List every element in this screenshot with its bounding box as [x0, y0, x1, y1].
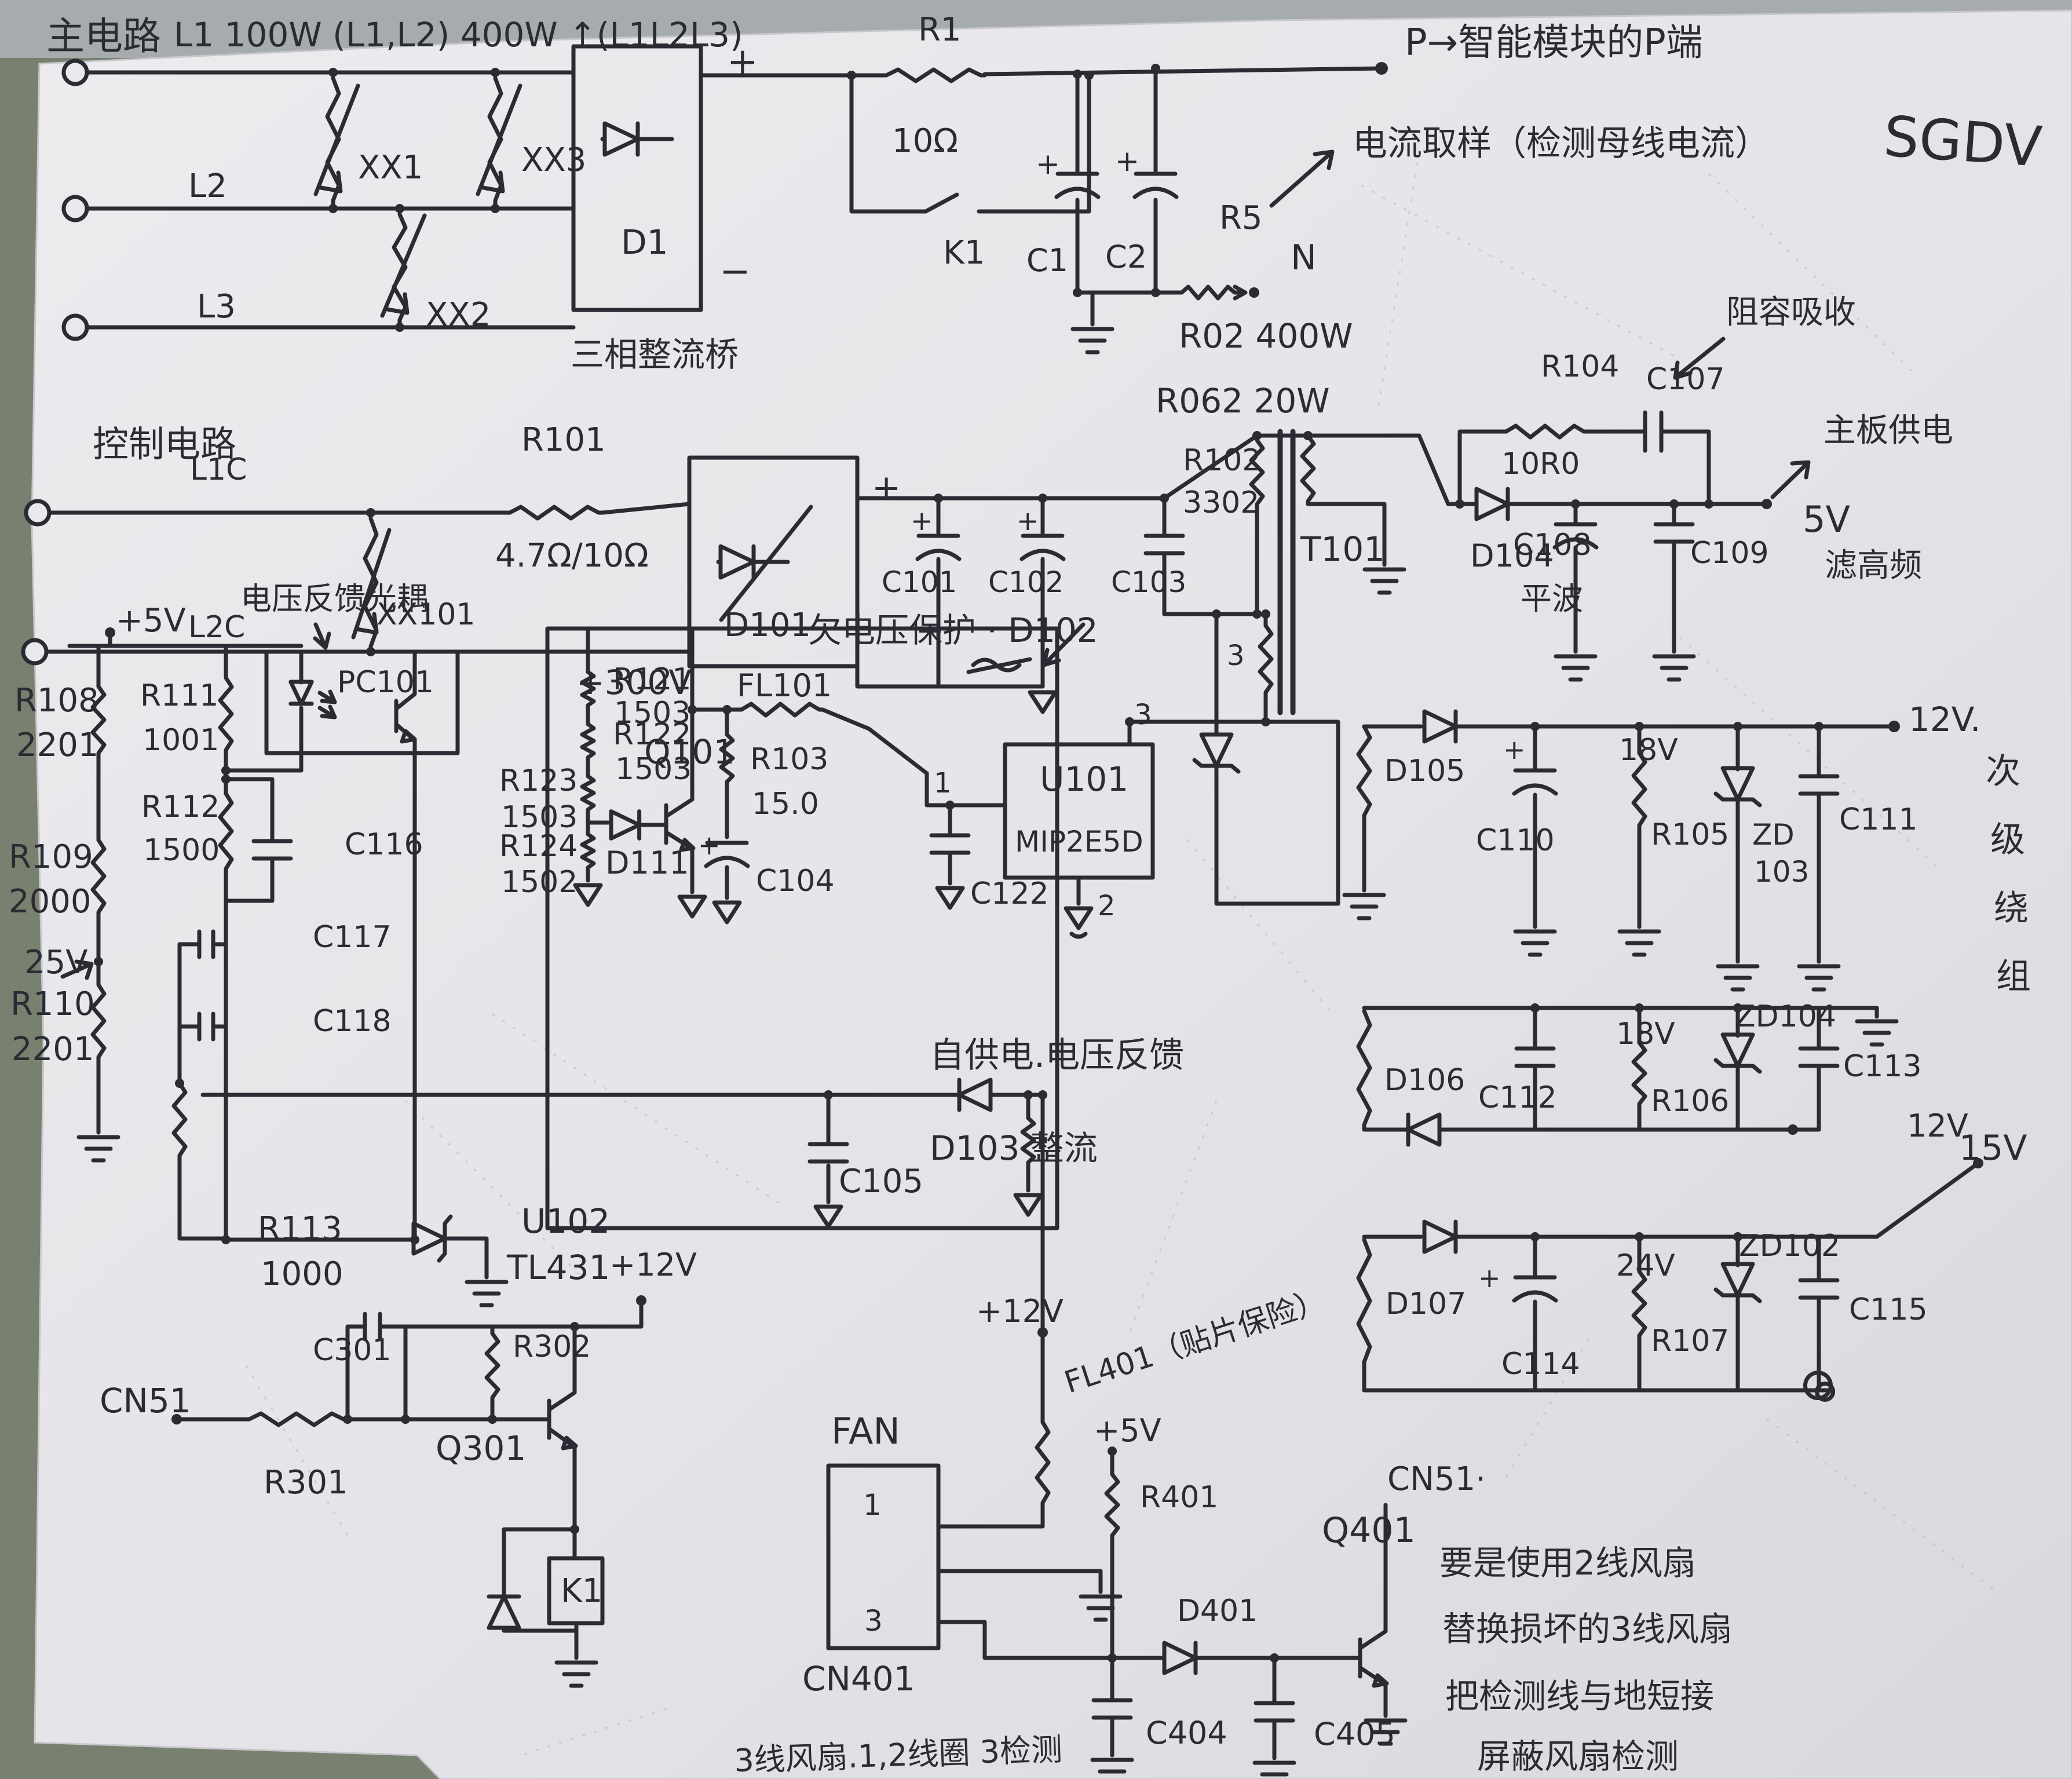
label-P-note: P→智能模块的P端 — [1405, 21, 1703, 64]
label-R1: R1 — [918, 11, 962, 49]
label-C405: C405 — [1314, 1716, 1395, 1752]
terminal-L3 — [64, 316, 87, 339]
schematic-canvas: 主电路L1 100W (L1,L2) 400W ↑(L1L2L3)L2L3XX1… — [0, 0, 2072, 1779]
label-R123: R123 — [499, 764, 578, 798]
label-c110p: + — [1503, 734, 1526, 765]
label-note2: 替换损坏的3线风扇 — [1442, 1609, 1733, 1649]
label-ZD102: ZD102 — [1739, 1229, 1840, 1263]
label-R105t: 18V — [1619, 733, 1678, 768]
label-sw3: 绕 — [1994, 888, 2029, 929]
label-N: N — [1291, 238, 1317, 278]
label-ZD103a: ZD — [1752, 818, 1795, 852]
label-snub-note: 阻容吸收 — [1726, 294, 1856, 331]
label-note3: 把检测线与地短接 — [1445, 1676, 1714, 1716]
label-L1C: L1C — [190, 452, 247, 487]
label-bridge-name: 三相整流桥 — [571, 335, 739, 374]
label-C103: C103 — [1111, 565, 1186, 599]
label-R110v: 2201 — [12, 1031, 94, 1068]
label-D103: D103 整流 — [930, 1128, 1098, 1168]
label-U101: U101 — [1040, 759, 1128, 799]
label-C109: C109 — [1690, 536, 1769, 571]
label-C102: C102 — [988, 565, 1064, 599]
label-R109v: 2000 — [9, 883, 92, 920]
label-K1c: K1 — [943, 234, 985, 272]
label-D1: D1 — [621, 222, 668, 262]
label-R107t: 24V — [1616, 1248, 1675, 1283]
label-R106t: 18V — [1616, 1017, 1675, 1051]
label-p5vfan: +5V — [1094, 1412, 1161, 1449]
label-FL101: FL101 — [737, 667, 832, 704]
label-R113: R113 — [258, 1210, 342, 1248]
label-C301: C301 — [313, 1333, 392, 1368]
label-R107: R107 — [1651, 1324, 1729, 1358]
terminal-L1C — [26, 501, 49, 524]
label-opto-note: 电压反馈光耦 — [240, 580, 428, 617]
label-R104: R104 — [1541, 349, 1619, 384]
label-Q401: Q401 — [1322, 1510, 1416, 1551]
label-SGDV: SGDV — [1881, 104, 2044, 180]
label-XX1: XX1 — [358, 149, 423, 187]
label-c102p: + — [1017, 505, 1039, 536]
label-CN401: CN401 — [802, 1659, 915, 1698]
label-C101: C101 — [882, 565, 957, 599]
label-R124v: 1502 — [501, 865, 578, 900]
label-C108: C108 — [1513, 528, 1592, 562]
label-p12fan: +12V — [976, 1293, 1064, 1329]
label-C118: C118 — [313, 1004, 392, 1039]
label-minus-d1: − — [719, 250, 751, 293]
label-T101: T101 — [1300, 529, 1385, 569]
label-c104p: + — [698, 830, 721, 861]
label-C115: C115 — [1849, 1292, 1928, 1327]
label-R101: R101 — [521, 421, 606, 459]
label-R1v: 10Ω — [892, 122, 958, 160]
label-pingbo: 平波 — [1521, 580, 1583, 617]
label-C104: C104 — [756, 864, 835, 898]
label-L3: L3 — [197, 288, 236, 326]
label-R101v: 4.7Ω/10Ω — [495, 537, 649, 575]
label-u101p3: 3 — [1134, 699, 1152, 731]
label-R401: R401 — [1140, 1480, 1218, 1515]
label-fanp1: 1 — [863, 1488, 882, 1522]
label-K1r: K1 — [561, 1572, 602, 1610]
label-C107: C107 — [1646, 362, 1725, 397]
label-sample-note: 电流取样（检测母线电流） — [1353, 123, 1770, 164]
label-R111v: 1001 — [142, 723, 219, 758]
label-R302: R302 — [513, 1329, 591, 1364]
label-R106: R106 — [1651, 1084, 1729, 1119]
label-ZD103b: 103 — [1754, 855, 1809, 889]
label-uv-note: 欠电压保护 · D102 — [808, 611, 1098, 650]
terminal-L1 — [64, 61, 87, 84]
label-self-note: 自供电.电压反馈 — [930, 1035, 1184, 1076]
label-CN51b: CN51· — [1387, 1460, 1486, 1498]
label-C111: C111 — [1839, 802, 1918, 837]
label-c114p: + — [1478, 1262, 1501, 1294]
label-C117: C117 — [313, 920, 392, 955]
label-R105: R105 — [1651, 817, 1729, 852]
label-p12relay: +12V — [609, 1247, 697, 1283]
label-FAN: FAN — [831, 1410, 900, 1452]
label-R112v: 1500 — [143, 833, 220, 868]
label-C105: C105 — [839, 1163, 923, 1200]
label-D106: D106 — [1384, 1063, 1465, 1098]
label-C1: C1 — [1026, 242, 1068, 279]
label-U101v: MIP2E5D — [1015, 825, 1143, 859]
label-sec-main: 主电路 — [46, 14, 161, 59]
label-out12: 12V. — [1909, 700, 1980, 739]
terminal-L2C — [23, 640, 46, 663]
label-c2p: + — [1115, 144, 1139, 178]
label-ZD104: ZD104 — [1735, 999, 1836, 1034]
label-5V: 5V — [1803, 498, 1850, 540]
label-R112: R112 — [141, 790, 220, 824]
label-fanp3: 3 — [864, 1604, 883, 1638]
label-L2: L2 — [188, 167, 227, 205]
label-D101: D101 — [724, 607, 811, 644]
label-R102: R102 — [1183, 443, 1261, 478]
label-PC101: PC101 — [337, 665, 434, 700]
label-R102v: 3302 — [1183, 485, 1259, 520]
label-note1: 要是使用2线风扇 — [1439, 1543, 1696, 1583]
label-sw2: 级 — [1990, 820, 2025, 860]
label-v25: 25V — [24, 944, 88, 981]
label-sw1: 次 — [1986, 751, 2020, 792]
label-L2C: L2C — [188, 610, 245, 645]
label-C2: C2 — [1105, 239, 1147, 275]
label-plus-d101: + — [872, 467, 901, 508]
label-note4: 屏蔽风扇检测 — [1477, 1737, 1679, 1776]
label-R121: R121 — [613, 662, 691, 697]
label-R110: R110 — [10, 985, 95, 1023]
label-D107: D107 — [1386, 1287, 1466, 1321]
label-C110: C110 — [1476, 823, 1555, 858]
label-C112: C112 — [1478, 1080, 1557, 1115]
label-D105: D105 — [1384, 754, 1465, 788]
label-XX2: XX2 — [426, 296, 491, 334]
label-C404: C404 — [1146, 1715, 1227, 1751]
label-R103v: 15.0 — [752, 787, 819, 821]
label-C114: C114 — [1501, 1347, 1580, 1382]
label-R062: R062 20W — [1156, 381, 1330, 421]
label-U102v: TL431 — [506, 1248, 610, 1287]
label-R108v: 2201 — [16, 726, 99, 764]
label-R108: R108 — [14, 682, 99, 719]
label-u101p1: 1 — [934, 767, 952, 799]
label-t101p3: 3 — [1227, 640, 1245, 672]
label-p5v: +5V — [116, 602, 186, 640]
label-u101p2: 2 — [1098, 890, 1116, 922]
label-R301: R301 — [264, 1464, 348, 1502]
label-filt-note: 滤高频 — [1825, 547, 1922, 585]
label-R5: R5 — [1219, 199, 1263, 237]
label-XX3: XX3 — [521, 141, 586, 179]
label-R103: R103 — [750, 742, 828, 777]
label-board-note: 主板供电 — [1823, 412, 1953, 450]
label-R104v: 10R0 — [1501, 447, 1580, 481]
label-c1p: + — [1036, 147, 1060, 181]
label-U102: U102 — [521, 1201, 610, 1241]
label-Q101: Q101 — [644, 732, 734, 772]
label-R113v: 1000 — [261, 1255, 343, 1293]
label-C113: C113 — [1843, 1049, 1922, 1084]
label-C122: C122 — [970, 876, 1049, 911]
label-plus-d1: + — [727, 41, 758, 83]
label-C116: C116 — [345, 827, 423, 862]
label-Q301: Q301 — [436, 1429, 526, 1468]
label-c101p: + — [911, 505, 933, 536]
label-sw4: 组 — [1996, 956, 2031, 997]
label-CN51a: CN51 — [100, 1381, 191, 1420]
terminal-L2 — [64, 197, 87, 220]
label-R124: R124 — [499, 829, 578, 864]
label-out15: 15V — [1959, 1128, 2027, 1168]
label-R111: R111 — [140, 678, 218, 713]
label-main-spec: L1 100W (L1,L2) 400W ↑(L1L2L3) — [174, 15, 743, 54]
label-D111: D111 — [605, 845, 689, 881]
label-R109: R109 — [9, 838, 93, 876]
label-R02: R02 400W — [1179, 316, 1353, 356]
label-D401: D401 — [1177, 1594, 1258, 1628]
